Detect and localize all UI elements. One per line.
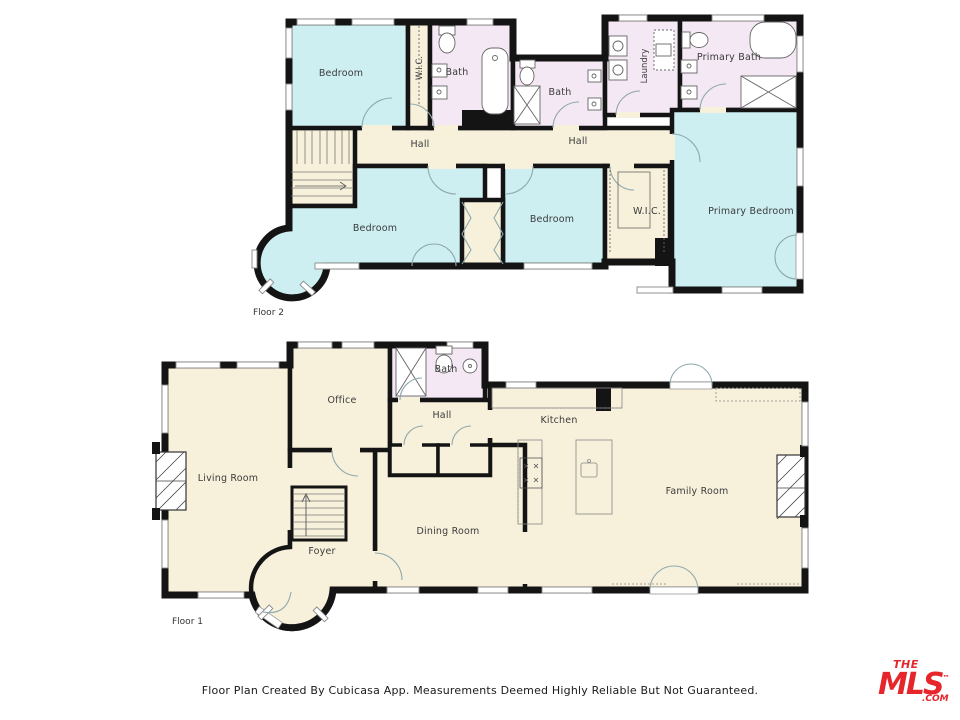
logo-com-text: .COM — [922, 695, 958, 704]
disclaimer-text: Floor Plan Created By Cubicasa App. Meas… — [0, 684, 960, 697]
room-label-primary-bedroom: Primary Bedroom — [708, 206, 794, 217]
room-label-bath-front: Bath — [446, 67, 469, 78]
room-label-primary-bath: Primary Bath — [697, 52, 761, 63]
room-label-kitchen: Kitchen — [540, 415, 577, 426]
room-label-hall-right: Hall — [568, 136, 587, 147]
wall-chunk — [655, 238, 672, 266]
room-label-wic-right: W.I.C. — [633, 206, 661, 217]
floor1-label: Floor 1 — [172, 617, 203, 627]
room-label-foyer: Foyer — [308, 546, 335, 557]
room-label-laundry: Laundry — [640, 49, 650, 84]
closet-1-floor1 — [390, 445, 438, 475]
room-label-bedroom-front: Bedroom — [319, 68, 363, 79]
room-label-dining: Dining Room — [417, 526, 480, 537]
room-label-office: Office — [327, 395, 356, 406]
floor2-label: Floor 2 — [253, 308, 284, 318]
floor-plan-page: Bedroom W.I.C. Bath Bath Laundry Primary… — [0, 0, 960, 720]
room-label-hall-left: Hall — [410, 139, 429, 150]
room-label-bath-mid: Bath — [549, 87, 572, 98]
room-label-hall: Hall — [432, 410, 451, 421]
french-door-gap — [670, 382, 712, 389]
room-kitchen-family-floor1 — [490, 385, 805, 590]
room-label-bedroom-left: Bedroom — [353, 223, 397, 234]
closet-strip-floor2 — [462, 200, 503, 266]
room-label-wic-left: W.I.C. — [415, 56, 425, 80]
fireplace-living — [152, 442, 186, 520]
room-label-bath: Bath — [435, 364, 458, 375]
french-door-gap — [796, 233, 803, 279]
french-door-gap — [650, 587, 698, 594]
wall-chunk — [596, 385, 611, 411]
closet-2-floor1 — [438, 445, 490, 475]
room-label-living: Living Room — [198, 473, 259, 484]
room-primary-bedroom-floor2 — [672, 110, 800, 290]
stairs-floor1 — [292, 487, 346, 540]
room-label-bedroom-mid: Bedroom — [530, 214, 574, 225]
logo-trademark: ™ — [943, 674, 950, 682]
floor-plan-drawing: Bedroom W.I.C. Bath Bath Laundry Primary… — [0, 0, 960, 720]
themls-logo: THE MLS™ .COM — [878, 659, 958, 704]
room-stairs-floor2 — [289, 128, 355, 206]
room-label-family: Family Room — [666, 486, 729, 497]
floor2-plan: Bedroom W.I.C. Bath Bath Laundry Primary… — [252, 15, 803, 318]
fireplace-family — [777, 445, 808, 527]
floor1-plan: Living Room Office Bath Hall Kitchen Fam… — [152, 342, 808, 629]
